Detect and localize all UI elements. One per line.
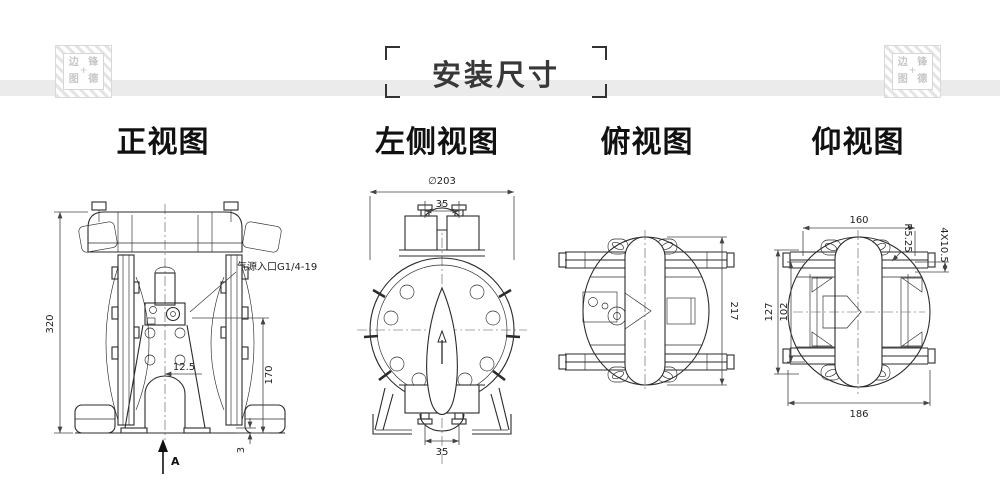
stamp-char: 锋	[88, 58, 98, 68]
left-dim-diameter: ∅203	[428, 176, 456, 187]
bottom-callout-slot-size: 4X10.5	[938, 227, 949, 262]
front-dim-total-height: 320	[45, 314, 56, 333]
page-title: 安装尺寸	[385, 52, 607, 94]
watermark-stamp-left: 边 锋 图 德 +	[55, 45, 112, 98]
left-dim-port-width-bottom: 35	[436, 447, 449, 458]
stamp-char: 德	[88, 75, 98, 85]
watermark-stamp-characters: 边 锋 图 德 +	[892, 53, 933, 90]
front-callout-air-inlet: 气源入口G1/4-19	[237, 260, 317, 273]
stamp-plus-mark: +	[909, 67, 917, 76]
stamp-char: 边	[69, 58, 79, 68]
watermark-stamp-right: 边 锋 图 德 +	[884, 45, 941, 98]
top-view-drawing: 217	[555, 218, 740, 403]
stamp-char: 边	[898, 58, 908, 68]
view-label-top: 俯视图	[601, 117, 694, 161]
bottom-dim-bolt-span-outer: 127	[765, 302, 775, 321]
top-dim-length: 217	[728, 301, 739, 320]
view-label-bottom: 仰视图	[812, 117, 905, 161]
left-side-view-drawing: ∅203 35 35	[335, 168, 550, 488]
front-section-mark: A	[171, 455, 180, 468]
stamp-char: 锋	[917, 58, 927, 68]
bottom-dim-bolt-span-inner: 102	[779, 302, 790, 321]
watermark-stamp-characters: 边 锋 图 德 +	[63, 53, 104, 90]
view-label-front: 正视图	[117, 117, 210, 161]
front-view-drawing: 320 170 3 12.5 气源入口G1/4-19 A	[40, 182, 320, 492]
view-label-left-side: 左侧视图	[375, 117, 499, 161]
left-dim-port-width-top: 35	[436, 199, 449, 210]
bottom-dim-width-top: 160	[849, 215, 868, 226]
stamp-char: 图	[69, 75, 79, 85]
bottom-view-drawing: 160 186 127 102 R5.25 4X10.5	[765, 198, 990, 438]
title-block: 安装尺寸	[385, 46, 607, 98]
front-dim-foot-height: 3	[236, 447, 247, 453]
bottom-callout-slot-radius: R5.25	[902, 223, 913, 252]
installation-dimensions-page: 边 锋 图 德 + 边 锋 图 德 + 安装尺寸 正视图 左侧视图 俯视图 仰视…	[0, 0, 1000, 495]
front-dim-center-offset: 12.5	[173, 362, 195, 373]
stamp-plus-mark: +	[80, 67, 88, 76]
bottom-dim-width-bottom: 186	[849, 409, 868, 420]
front-dim-inner-height: 170	[264, 365, 275, 384]
stamp-char: 德	[917, 75, 927, 85]
stamp-char: 图	[898, 75, 908, 85]
